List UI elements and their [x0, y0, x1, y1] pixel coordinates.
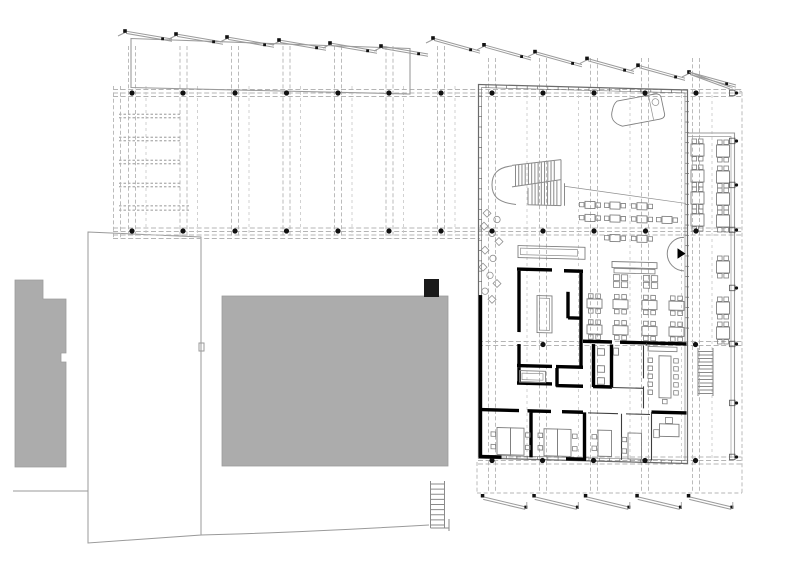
structural-column-dot — [540, 342, 545, 347]
work-table — [613, 300, 628, 309]
bar-counter-outer — [518, 246, 585, 260]
lounge-seat-diamond — [483, 209, 491, 217]
tooth-slope — [382, 48, 428, 56]
pergola-column-dot — [735, 342, 738, 345]
chair — [724, 274, 729, 278]
tooth-slope — [381, 46, 428, 54]
piano-body — [609, 93, 666, 128]
cafe-table — [662, 216, 672, 223]
wc-fixture — [598, 349, 605, 356]
chair — [621, 236, 626, 241]
chair — [674, 367, 679, 372]
stair-curved-landing — [492, 165, 516, 204]
tooth-slope — [125, 31, 172, 39]
chair — [724, 322, 729, 326]
chair — [724, 158, 729, 162]
stool — [652, 283, 658, 289]
tooth-apex-marker — [123, 29, 127, 33]
chair — [651, 310, 656, 315]
structural-column-dot — [438, 228, 443, 233]
structural-column-dot — [489, 90, 494, 95]
chair — [631, 217, 636, 222]
tooth-end-marker — [725, 82, 728, 85]
office-desk — [497, 427, 511, 454]
terrace-table — [717, 171, 730, 183]
wc-fixture — [598, 378, 605, 385]
structural-column-dot — [591, 228, 596, 233]
structural-column-dot — [129, 228, 134, 233]
tooth-slope — [433, 38, 480, 51]
work-table — [642, 326, 657, 335]
stool — [614, 282, 620, 288]
tooth-slope — [587, 497, 629, 507]
chair — [671, 322, 676, 327]
structural-column-dot — [693, 342, 698, 347]
chair — [644, 310, 649, 315]
work-table — [613, 326, 628, 335]
lounge-seat-diamond — [488, 295, 496, 303]
chair — [724, 315, 729, 319]
roof-tail — [689, 72, 730, 87]
tooth-slope — [484, 45, 531, 58]
office-desk — [544, 429, 558, 456]
tooth-end-marker — [469, 48, 472, 51]
chair — [596, 216, 601, 221]
tooth-apex-marker — [174, 32, 178, 36]
structural-column-dot — [180, 228, 185, 233]
tooth-end-marker — [520, 55, 523, 58]
tooth-apex-marker — [431, 36, 435, 40]
structural-column-dot — [642, 458, 647, 463]
structural-column-dot — [438, 90, 443, 95]
tooth-back-edge — [631, 67, 638, 71]
chair — [718, 206, 723, 210]
facade-mullion-ticks — [479, 85, 690, 465]
pergola-column-dot — [735, 228, 738, 231]
chair — [621, 203, 626, 208]
chair — [615, 309, 620, 314]
tooth-slope — [587, 58, 634, 71]
desk-chair — [666, 417, 673, 423]
tooth-back-edge — [528, 53, 535, 57]
terrace-table — [717, 261, 730, 273]
terrace-table — [717, 215, 730, 227]
chair — [622, 321, 627, 326]
stool — [614, 275, 620, 281]
chair — [718, 166, 723, 170]
site-building-center-hall — [88, 232, 201, 543]
chair — [674, 391, 679, 396]
chair — [631, 204, 636, 209]
tooth-slope — [588, 61, 634, 74]
structural-column-dot — [693, 458, 698, 463]
chair — [573, 434, 578, 439]
cafe-table — [637, 216, 647, 223]
wc-fixtures — [598, 348, 619, 385]
chair — [491, 444, 496, 449]
site-building-gray-hall — [222, 296, 448, 466]
chair — [631, 236, 636, 241]
structural-column-dot — [180, 90, 185, 95]
structural-column-dot — [693, 90, 698, 95]
chair — [651, 336, 656, 341]
east-stair-treads — [698, 352, 713, 394]
structural-column-dot — [693, 228, 698, 233]
tooth-end-marker — [161, 37, 164, 40]
chair — [718, 297, 723, 301]
work-table — [587, 299, 602, 308]
tooth-slope — [689, 499, 731, 509]
main-building-layer — [479, 85, 690, 465]
structural-column-dot — [284, 90, 289, 95]
site-stair-frame — [431, 481, 450, 531]
chair — [621, 216, 626, 221]
chair — [622, 336, 627, 341]
chair — [718, 158, 723, 162]
tooth-slope — [485, 47, 531, 60]
work-table — [642, 300, 657, 309]
tooth-slope — [586, 499, 628, 509]
cafe-table — [637, 203, 647, 210]
structural-column-dot — [642, 90, 647, 95]
tooth-apex-marker — [533, 50, 537, 54]
chair — [596, 320, 601, 325]
lounge-seat-diamond — [495, 238, 503, 246]
chair — [592, 434, 597, 439]
long-high-table — [612, 262, 658, 289]
chair — [724, 210, 729, 214]
chair — [656, 217, 661, 222]
chair — [674, 359, 679, 364]
grand-piano — [609, 93, 666, 128]
lounge-scatter-seats — [479, 209, 503, 304]
pergola-column-dot — [735, 455, 738, 458]
chair — [592, 446, 597, 451]
chair — [718, 256, 723, 260]
chair — [644, 321, 649, 326]
chair — [579, 202, 584, 207]
terrace-long-table-seating — [691, 139, 730, 344]
tooth-end-marker — [571, 62, 574, 65]
chair — [538, 433, 543, 438]
terrace-table — [717, 302, 730, 314]
cafe-table — [585, 214, 595, 221]
site-building-gray-hall-corner-block — [424, 279, 439, 297]
terrace-table — [717, 327, 730, 339]
tooth-slope — [690, 497, 732, 507]
tooth-apex-marker — [277, 38, 281, 42]
terrace-table — [717, 145, 730, 157]
tooth-slope — [483, 499, 525, 509]
cafe-table — [610, 202, 620, 209]
meeting-table — [659, 356, 671, 398]
office-desk — [558, 429, 572, 456]
long-table-top — [612, 262, 657, 269]
stool — [652, 276, 658, 282]
tooth-apex-marker — [481, 494, 485, 498]
sideboard — [648, 346, 677, 351]
stair-void-rail — [565, 186, 687, 203]
structural-column-dot — [489, 458, 494, 463]
chair — [604, 236, 609, 241]
office-desk — [511, 428, 525, 455]
building-outer-wall — [479, 85, 688, 464]
tooth-end-marker — [674, 76, 677, 79]
tooth-back-edge — [426, 40, 433, 44]
tooth-apex-marker — [225, 35, 229, 39]
terrace-layer — [688, 90, 738, 460]
tooth-apex-marker — [687, 494, 691, 498]
site-path-line-south — [201, 525, 429, 535]
lounge-seat-diamond — [479, 263, 487, 271]
pergola-column-dot — [735, 183, 738, 186]
cafe-table — [637, 235, 647, 242]
lounge-seat-round — [487, 272, 493, 279]
site-exterior-stair — [431, 481, 450, 531]
chair — [573, 446, 578, 451]
structural-column-dot — [540, 90, 545, 95]
chair — [724, 256, 729, 260]
structural-column-dot — [591, 458, 596, 463]
chair — [622, 437, 627, 442]
chair — [615, 294, 620, 299]
chair — [615, 320, 620, 325]
chair — [718, 274, 723, 278]
lounge-seat-round — [482, 288, 488, 295]
tooth-back-edge — [118, 33, 125, 37]
chair — [644, 336, 649, 341]
chair — [604, 203, 609, 208]
tooth-apex-marker — [379, 44, 383, 48]
tooth-slope — [639, 497, 681, 507]
tooth-back-edge — [580, 60, 587, 64]
desk-return — [654, 430, 660, 438]
structural-column-dot — [643, 228, 648, 233]
tooth-apex-marker — [585, 57, 589, 61]
tooth-end-marker — [315, 46, 318, 49]
pergola-column-dot — [735, 286, 738, 289]
chair — [596, 335, 601, 340]
pergola-column-dot — [735, 401, 738, 404]
cafe-tables — [579, 201, 677, 243]
meeting-room-furniture — [648, 346, 678, 404]
structural-column-dot — [489, 228, 494, 233]
tooth-slope — [434, 40, 480, 53]
core-room-table-outer — [520, 371, 546, 383]
site-layer — [13, 232, 449, 543]
chair — [718, 210, 723, 214]
chair — [651, 295, 656, 300]
tooth-slope — [535, 499, 577, 509]
tooth-slope — [535, 52, 582, 65]
tooth-apex-marker — [635, 494, 639, 498]
tooth-slope — [126, 33, 172, 41]
chair — [671, 337, 676, 342]
east-exterior-stair — [698, 348, 713, 396]
chair — [604, 216, 609, 221]
chair — [674, 375, 679, 380]
chair — [491, 432, 496, 437]
structural-column-dot — [386, 90, 391, 95]
structural-column-dot — [284, 228, 289, 233]
chair — [673, 218, 678, 223]
chair — [718, 140, 723, 144]
structural-column-dot — [335, 90, 340, 95]
tooth-back-edge — [682, 74, 689, 78]
tooth-back-edge — [169, 36, 176, 40]
pergola-column-dot — [735, 139, 738, 142]
canopy-ladder-rungs — [119, 114, 190, 210]
chair — [622, 310, 627, 315]
tooth-slope — [484, 497, 526, 507]
chair — [596, 309, 601, 314]
tooth-back-edge — [477, 46, 484, 50]
chair — [724, 166, 729, 170]
tooth-end-marker — [623, 69, 626, 72]
cafe-table — [610, 234, 620, 241]
structural-column-dot — [591, 90, 596, 95]
tooth-apex-marker — [584, 494, 588, 498]
chair — [651, 321, 656, 326]
tooth-apex-marker — [482, 43, 486, 47]
chair — [671, 296, 676, 301]
tooth-slope — [536, 497, 578, 507]
stair-treads — [516, 160, 557, 205]
structural-column-dot — [129, 90, 134, 95]
tooth-apex-marker — [328, 41, 332, 45]
chair — [718, 315, 723, 319]
structural-column-dot — [540, 458, 545, 463]
chair — [622, 295, 627, 300]
stool — [622, 275, 628, 281]
terrace-table — [717, 193, 730, 205]
tooth-back-edge — [374, 48, 381, 52]
chair — [615, 335, 620, 340]
chair — [596, 203, 601, 208]
tooth-apex-marker — [636, 63, 640, 67]
chair — [644, 295, 649, 300]
tooth-slope — [639, 68, 685, 81]
lounge-seat-diamond — [493, 280, 501, 288]
structural-column-dot — [232, 90, 237, 95]
chair — [724, 297, 729, 301]
stool — [622, 282, 628, 288]
piano-stool — [651, 98, 659, 106]
tooth-end-marker — [366, 49, 369, 52]
lounge-seat-round — [494, 216, 500, 223]
structural-column-dot — [232, 228, 237, 233]
hall-work-tables — [587, 294, 684, 342]
floorplan-canvas — [0, 0, 800, 566]
chair — [718, 188, 723, 192]
tooth-apex-marker — [532, 494, 536, 498]
site-building-west — [15, 280, 66, 467]
wc-sink — [614, 348, 619, 355]
tooth-slope — [638, 499, 680, 509]
tooth-slope — [638, 65, 685, 78]
office-corner-desk — [660, 424, 680, 437]
chair — [538, 446, 543, 451]
tooth-slope — [280, 42, 326, 50]
tooth-end-marker — [263, 43, 266, 46]
chair — [724, 188, 729, 192]
chair — [622, 449, 627, 454]
tooth-slope — [536, 54, 582, 67]
core-shaft-inner — [540, 298, 550, 330]
chair — [674, 383, 679, 388]
tooth-slope — [227, 37, 274, 45]
structural-column-dot — [540, 228, 545, 233]
chair — [663, 399, 668, 404]
structural-column-dot — [335, 228, 340, 233]
work-table — [587, 325, 602, 334]
cafe-table — [585, 201, 595, 208]
cafe-table — [610, 215, 620, 222]
east-entrance-door — [667, 237, 685, 271]
chair — [596, 294, 601, 299]
pergola-column-dot — [735, 91, 738, 94]
chair — [671, 311, 676, 316]
office-desk — [598, 430, 612, 456]
lounge-seat-diamond — [481, 246, 489, 254]
south-sawtooth-roof — [481, 494, 734, 509]
wc-fixture — [598, 366, 605, 373]
chair — [724, 184, 729, 188]
structural-column-dot — [386, 228, 391, 233]
chair — [724, 140, 729, 144]
bar-counter-inner — [521, 248, 578, 256]
tooth-end-marker — [417, 52, 420, 55]
chair — [579, 215, 584, 220]
chair — [718, 322, 723, 326]
chair — [718, 184, 723, 188]
chair — [724, 206, 729, 210]
tooth-end-marker — [212, 40, 215, 43]
floorplan-page — [0, 0, 800, 566]
